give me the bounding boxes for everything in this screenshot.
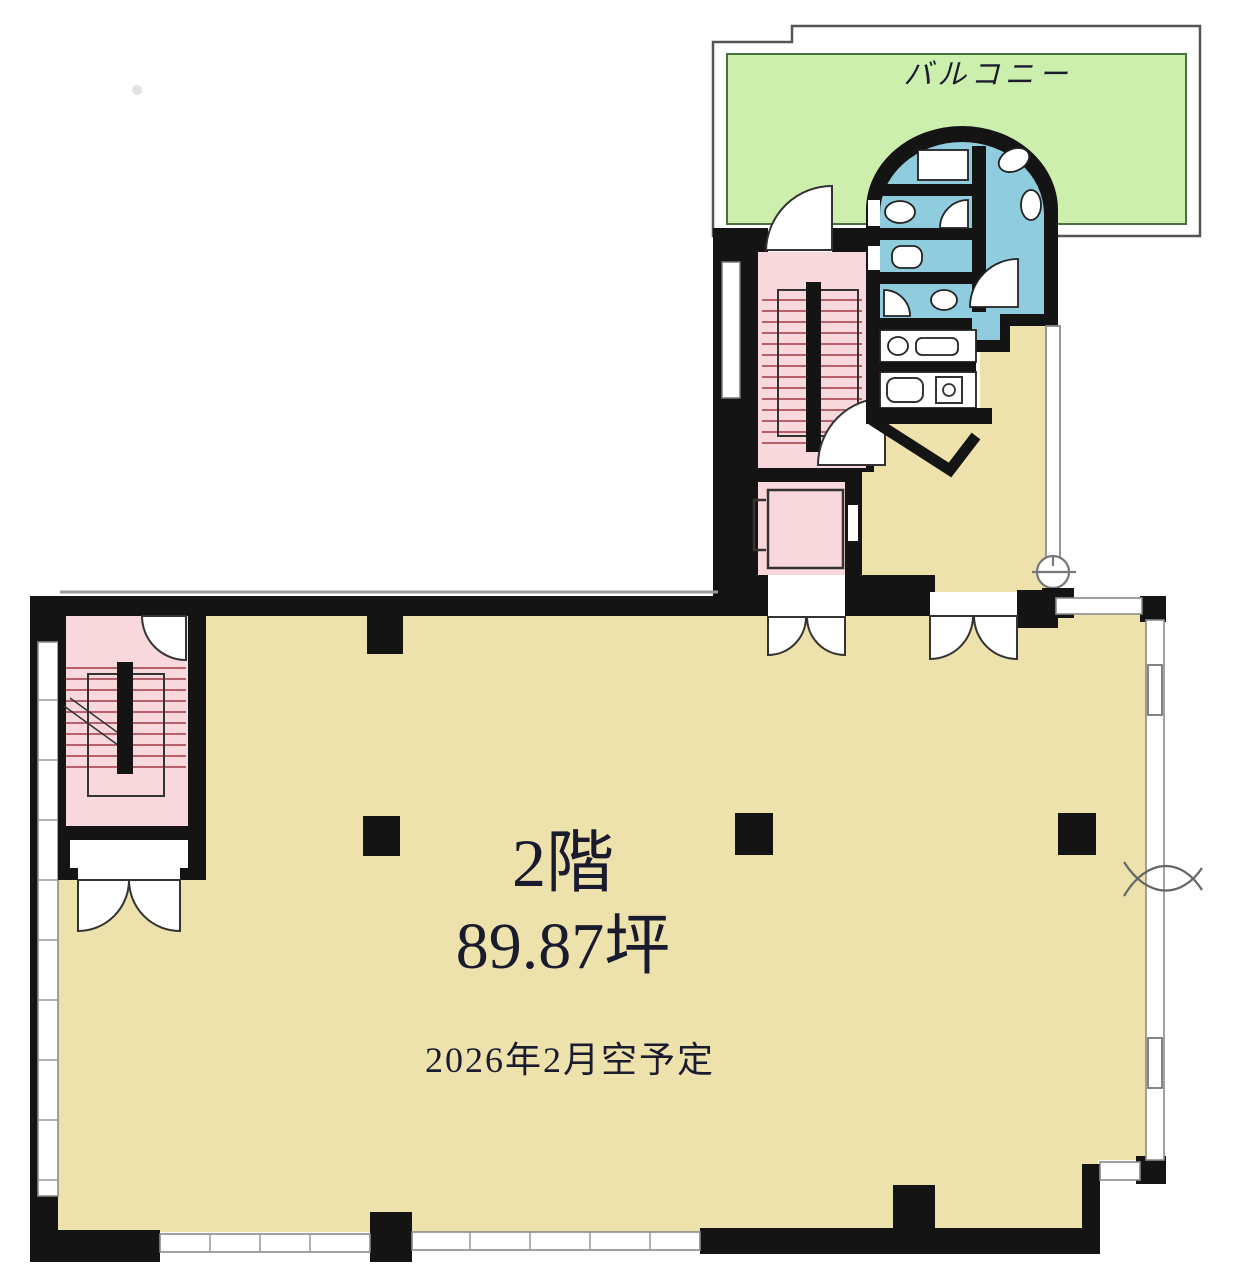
stair-newel-top [806, 282, 821, 452]
corridor-window-band [1046, 326, 1060, 560]
column [1058, 813, 1096, 855]
stairwell-door-opening [78, 868, 180, 880]
stall-door-slot [868, 246, 880, 270]
stairhall-elevator-divider [758, 468, 862, 482]
floor-plan-page: バルコニー [0, 0, 1246, 1280]
bottom-wall-column [370, 1212, 412, 1262]
stall-partition [880, 184, 972, 196]
stall-partition [880, 318, 972, 330]
bottom-wall-column-right [893, 1185, 935, 1233]
notch-window-band [1100, 1162, 1140, 1180]
top-window-band [1056, 598, 1142, 614]
top-right-corner-block [1140, 596, 1166, 622]
junction-door-opening [930, 592, 1017, 616]
bottom-window-band-left [160, 1234, 370, 1252]
counter-bottom-wall [866, 408, 992, 424]
sink-icon [887, 378, 923, 402]
stairwell-vestibule [70, 840, 188, 868]
right-window-slot [1148, 665, 1162, 715]
counter-divider [880, 362, 976, 372]
elevator-wall-slot [848, 505, 858, 541]
area-label: 89.87坪 [456, 910, 671, 983]
wing-left-window [722, 262, 740, 398]
floor-label: 2階 [512, 825, 614, 901]
notch-step-wall [1082, 1164, 1100, 1252]
stove-icon [936, 377, 962, 403]
sink-counter-icon [918, 150, 968, 180]
bottom-window-band-right [412, 1232, 700, 1250]
elevator-hall-door-opening [768, 575, 845, 617]
availability-label: 2026年2月空予定 [425, 1040, 715, 1080]
toilet-icon [931, 290, 957, 310]
stair-newel-left [117, 662, 133, 774]
left-window-band [38, 642, 58, 1196]
left-outer-wall-line [30, 596, 38, 1262]
urinal-icon [1021, 190, 1041, 220]
toilet-icon [892, 246, 922, 268]
column [363, 816, 400, 856]
right-window-slot [1148, 1038, 1162, 1088]
column [735, 813, 773, 855]
left-window-wall [38, 642, 58, 1196]
bottom-wall-black-left [36, 1230, 160, 1262]
stall-partition [880, 272, 972, 284]
balcony-label: バルコニー [903, 59, 1072, 91]
main-top-wall-mid [862, 592, 930, 616]
scan-smudge [132, 85, 142, 95]
stall-partition [880, 228, 972, 240]
basin-icon [916, 338, 958, 355]
elevator-cab [768, 490, 843, 568]
basin-icon [888, 337, 908, 355]
stall-door-slot [868, 200, 880, 226]
floor-plan: バルコニー [0, 0, 1246, 1280]
main-top-wall-block [1017, 590, 1058, 628]
wall-column-stub [367, 616, 403, 654]
toilet-icon [885, 201, 915, 223]
